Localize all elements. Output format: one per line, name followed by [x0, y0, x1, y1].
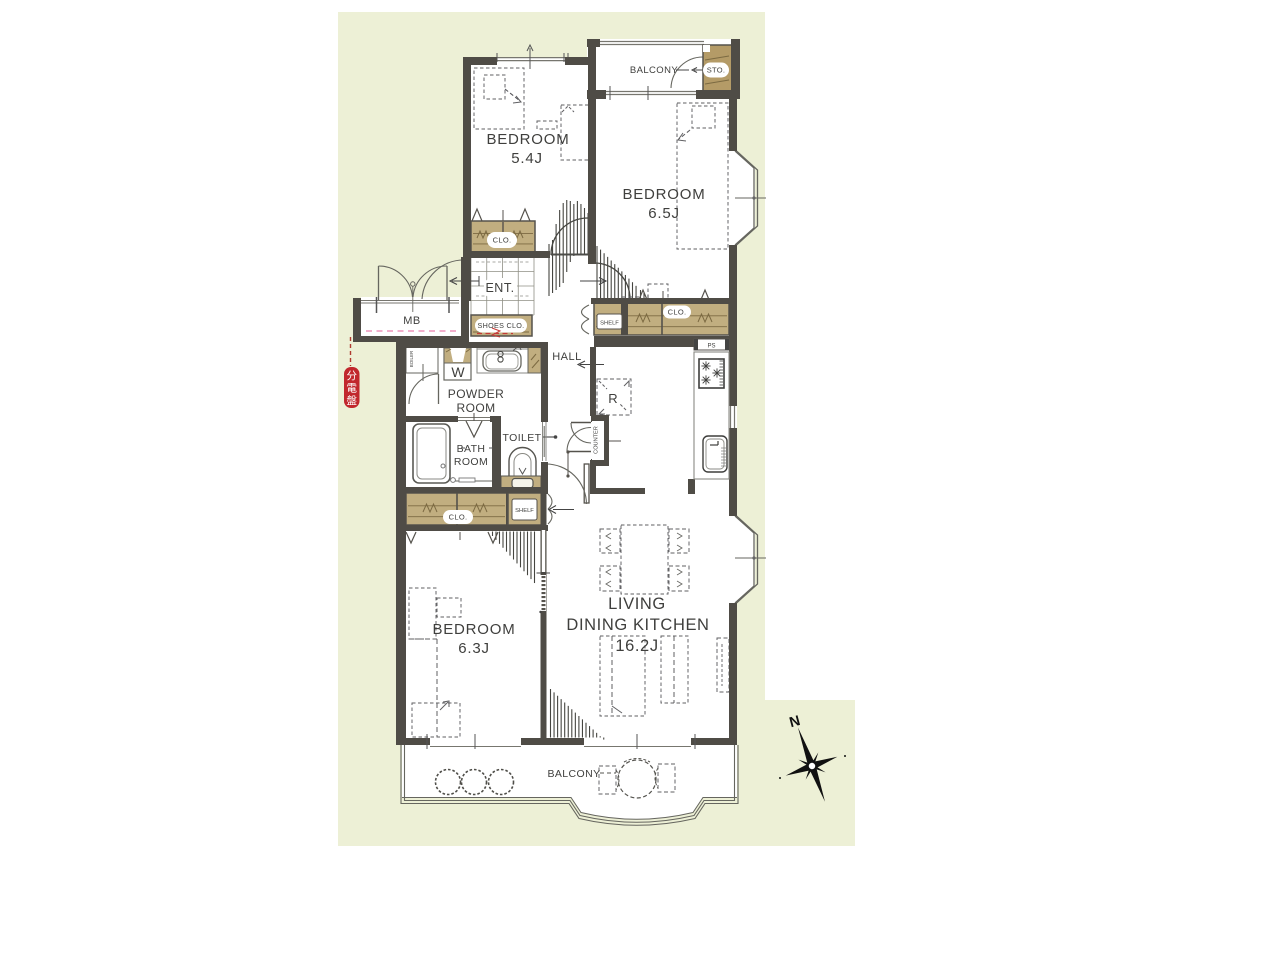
svg-text:MB: MB	[403, 315, 421, 327]
svg-text:HALL: HALL	[552, 351, 582, 363]
svg-text:ENT.: ENT.	[485, 281, 514, 295]
svg-text:BALCONY: BALCONY	[630, 65, 678, 76]
svg-text:SHOES CLO.: SHOES CLO.	[478, 321, 525, 330]
svg-text:BEDROOM: BEDROOM	[432, 621, 515, 638]
svg-text:CLO.: CLO.	[493, 236, 512, 245]
svg-text:LIVING: LIVING	[608, 595, 666, 613]
svg-text:6.5J: 6.5J	[648, 205, 680, 222]
svg-text:W: W	[451, 364, 465, 380]
svg-text:分: 分	[347, 370, 358, 382]
svg-text:BEDROOM: BEDROOM	[622, 186, 705, 203]
svg-text:STO.: STO.	[707, 66, 726, 75]
svg-text:PS: PS	[707, 344, 715, 350]
svg-text:SHELF: SHELF	[515, 508, 534, 514]
svg-text:BEDROOM: BEDROOM	[486, 131, 569, 148]
svg-text:CLO.: CLO.	[449, 513, 468, 522]
svg-text:16.2J: 16.2J	[615, 637, 658, 655]
svg-text:ROOM: ROOM	[457, 401, 496, 415]
svg-text:R: R	[608, 391, 617, 406]
svg-text:BATH: BATH	[457, 443, 486, 455]
svg-text:COUNTER: COUNTER	[594, 426, 600, 454]
svg-text:ROOM: ROOM	[454, 456, 488, 468]
svg-text:DINING KITCHEN: DINING KITCHEN	[566, 616, 709, 634]
svg-text:盤: 盤	[347, 394, 358, 407]
svg-text:CLO.: CLO.	[668, 308, 687, 317]
svg-text:電: 電	[347, 383, 358, 395]
svg-text:6.3J: 6.3J	[458, 640, 490, 657]
svg-text:POWDER: POWDER	[448, 387, 504, 401]
svg-text:BALCONY: BALCONY	[548, 768, 601, 780]
svg-text:5.4J: 5.4J	[511, 150, 543, 167]
svg-text:BOILER: BOILER	[409, 350, 414, 367]
svg-text:TOILET: TOILET	[503, 432, 542, 444]
svg-text:SHELF: SHELF	[600, 321, 619, 327]
